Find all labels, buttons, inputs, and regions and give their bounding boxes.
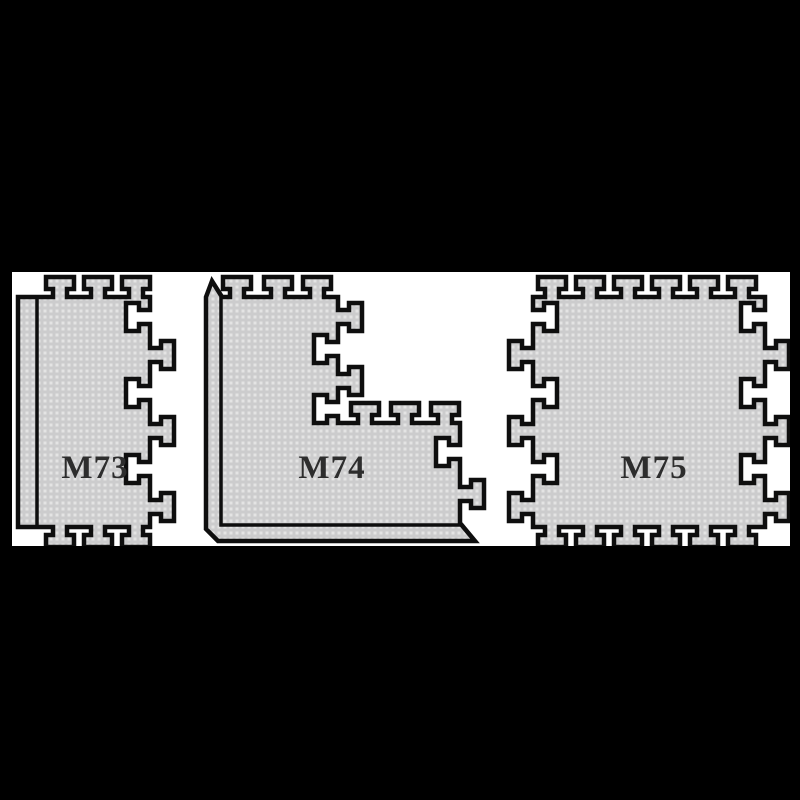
m73-outline — [18, 277, 174, 546]
m74-outline — [206, 277, 484, 541]
page-background: M73 M74 M75 — [0, 0, 800, 800]
m75-outline — [509, 277, 789, 546]
mat-piece-m73: M73 — [18, 277, 174, 546]
m73-label: M73 — [61, 450, 128, 486]
m75-label: M75 — [620, 450, 687, 486]
mat-piece-m74: M74 — [206, 277, 484, 541]
m74-label: M74 — [298, 450, 365, 486]
mat-piece-m75: M75 — [509, 277, 789, 546]
diagram-panel: M73 M74 M75 — [12, 272, 790, 546]
mat-diagram: M73 M74 M75 — [12, 272, 790, 546]
